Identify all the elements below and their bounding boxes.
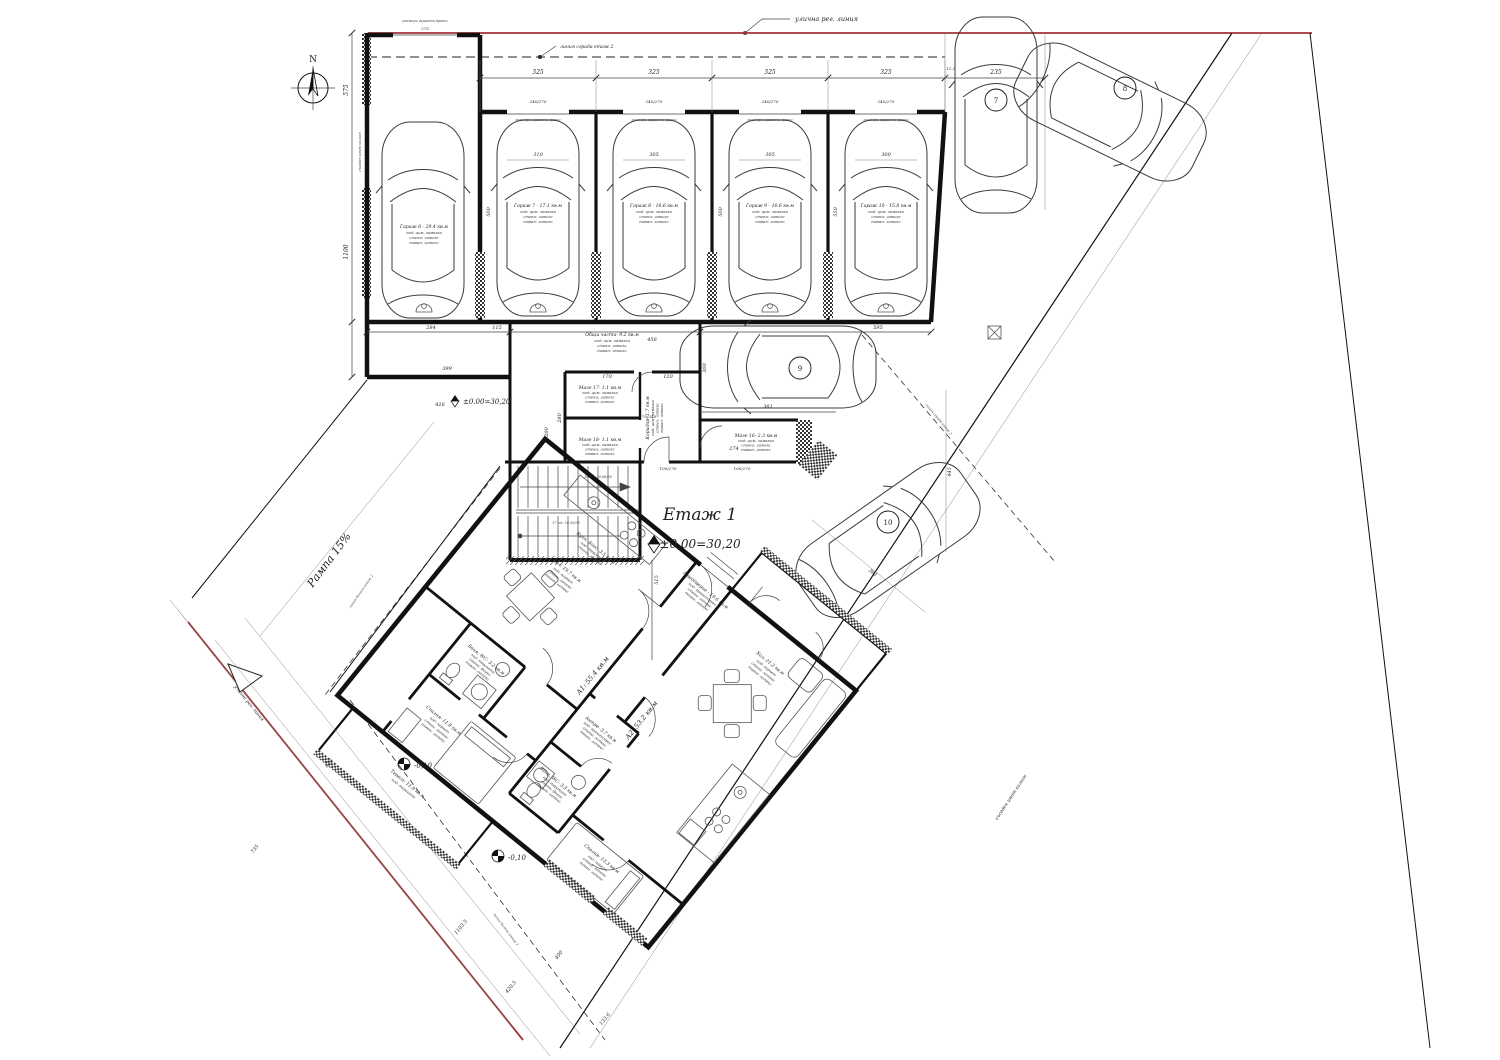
svg-text:±0.00=30,20: ±0.00=30,20 (463, 398, 511, 406)
svg-text:284: 284 (425, 325, 436, 331)
gate-note: размери гаражни врати (402, 19, 447, 23)
svg-text:274: 274 (728, 446, 739, 452)
svg-text:стени: латекс: стени: латекс (597, 344, 626, 348)
stair-flight-note: 17 ст. 16,58/30 (552, 521, 581, 525)
entry-level-mark: ±0.00=30,20 (451, 395, 511, 407)
neighbor-label-se: съседен имот калкан (994, 774, 1028, 822)
parking-number-9: 9 (789, 357, 811, 379)
svg-text:325: 325 (532, 69, 544, 76)
svg-text:таван: латекс: таван: латекс (755, 220, 784, 224)
garage-6-label: Гараж 6 - 29.4 кв.м под: цим. замазка ст… (399, 224, 448, 245)
drain-icon (762, 304, 778, 312)
svg-text:70/240: 70/240 (642, 414, 657, 419)
floor-level: ±0,00=30,20 (659, 537, 741, 551)
shaft-symbol (988, 326, 1001, 339)
svg-text:10: 10 (884, 519, 893, 527)
svg-text:12.5: 12.5 (946, 66, 956, 71)
svg-text:стени: латекс: стени: латекс (741, 444, 770, 448)
svg-text:таван: латекс: таван: латекс (660, 403, 664, 432)
floor-plan-drawing: улична рег. линия линия сграда етаж 2 съ… (0, 0, 1500, 1060)
svg-text:325: 325 (764, 69, 776, 76)
street-line-label: улична рег. линия (794, 15, 858, 23)
svg-text:-0,10: -0,10 (508, 854, 526, 862)
storage-18-label: Мазе 18- 1.1 кв.м под: цим. замазка стен… (578, 437, 622, 456)
car-icon (1001, 27, 1218, 197)
svg-text:Тераса- 11.9 кв.м: Тераса- 11.9 кв.м (389, 768, 426, 799)
svg-text:595: 595 (873, 325, 883, 331)
svg-text:100/270: 100/270 (659, 466, 676, 471)
svg-text:под: цим. замазка: под: цим. замазка (594, 339, 630, 343)
svg-text:Гараж 9 - 16.6 кв.м: Гараж 9 - 16.6 кв.м (745, 203, 794, 209)
svg-text:550: 550 (833, 206, 839, 216)
building-line2-right (862, 335, 1055, 562)
parking-number-8: 8 (1114, 77, 1136, 99)
svg-text:таван: латекс: таван: латекс (597, 349, 626, 353)
drain-icon (646, 304, 662, 312)
svg-text:280: 280 (557, 412, 563, 423)
svg-text:стени: латекс: стени: латекс (409, 236, 438, 240)
a2-antre-label: Антре- 3.7 кв.м под: гранитогрес стени: … (575, 714, 618, 754)
svg-text:235: 235 (989, 69, 1002, 76)
svg-text:таван: латекс: таван: латекс (523, 220, 552, 224)
site-boundaries: улична рег. линия линия сграда етаж 2 съ… (170, 15, 1430, 1048)
svg-text:под: цим. замазка: под: цим. замазка (520, 210, 556, 214)
svg-text:под: цим. замазка: под: цим. замазка (868, 210, 904, 214)
a2-bath-label: Баня, WC- 3.3 кв.м под: теракота стени: … (529, 765, 577, 809)
svg-text:515: 515 (654, 575, 660, 585)
building-line2-label: линия сграда етаж 2 (560, 44, 614, 50)
gate-note: размери гаражни врати (747, 118, 792, 122)
garage-9-label: Гараж 9 - 16.6 кв.м под: цим. замазка ст… (745, 203, 794, 224)
core-block: 16 ст. 16,88/30 17 ст. 16,58/30 Общи час… (451, 322, 837, 565)
drain-icon (530, 304, 546, 312)
svg-text:1103.5: 1103.5 (453, 919, 469, 936)
svg-text:1100: 1100 (343, 244, 350, 259)
kitchen-a1 (564, 475, 666, 564)
svg-text:500: 500 (718, 206, 724, 216)
a1-bath-label: Баня, WC- 3.2 кв.м под: теракота стени: … (457, 642, 505, 686)
svg-text:305: 305 (649, 152, 659, 158)
a2-hol-label: Хол: 21.2 кв.м под: паркет стени: латекс… (745, 650, 786, 689)
gate-note: размери гаражни врати (631, 118, 676, 122)
svg-text:таван: латекс: таван: латекс (585, 400, 614, 404)
drain-icon (878, 304, 894, 312)
common-area-label: Общи части- 9.2 кв.м под: цим. замазка с… (585, 331, 639, 353)
drawing-sheet: улична рег. линия линия сграда етаж 2 съ… (0, 0, 1500, 1060)
svg-text:399: 399 (442, 366, 452, 372)
svg-text:под: цим. замазка: под: цим. замазка (636, 210, 672, 214)
svg-text:-0,10: -0,10 (414, 762, 432, 770)
svg-text:7: 7 (994, 97, 998, 105)
svg-text:9: 9 (798, 365, 802, 373)
balcony-line2-bottom (350, 700, 605, 1040)
svg-text:240/270: 240/270 (876, 99, 894, 104)
svg-text:под: цим. замазка: под: цим. замазка (738, 439, 774, 443)
svg-text:таван: латекс: таван: латекс (409, 241, 438, 245)
svg-text:305: 305 (765, 152, 775, 158)
car-icon (949, 17, 1043, 213)
svg-text:115: 115 (492, 325, 502, 331)
svg-text:стени: латекс: стени: латекс (585, 448, 614, 452)
storage-17-label: Мазе 17- 1.1 кв.м под: цим. замазка стен… (578, 385, 622, 404)
car-icon (376, 122, 470, 318)
car-icon (680, 320, 876, 414)
svg-text:таван: латекс: таван: латекс (741, 448, 770, 452)
svg-text:Гараж 7 - 17.1 кв.м: Гараж 7 - 17.1 кв.м (513, 203, 562, 209)
svg-text:500: 500 (486, 206, 492, 216)
svg-text:300: 300 (881, 152, 891, 158)
svg-text:под: цим. замазка: под: цим. замазка (752, 210, 788, 214)
svg-text:под: цим. замазка: под: цим. замазка (582, 391, 618, 395)
svg-text:361: 361 (763, 404, 773, 410)
balcony-line2-bottom-label: линия балкон етаж 2 (492, 912, 519, 946)
svg-text:456: 456 (646, 337, 657, 343)
a2-bedroom-label: Спалня- 13.3 кв.м под: паркет стени: лат… (573, 843, 620, 887)
svg-text:120: 120 (663, 374, 673, 380)
garage-8-label: Гараж 8 - 16.6 кв.м под: цим. замазка ст… (629, 203, 678, 224)
svg-text:240/270: 240/270 (760, 99, 778, 104)
svg-text:735: 735 (250, 844, 261, 855)
apartment-wing: Хол: 19.7 кв.м под: паркет стени: латекс… (299, 396, 892, 996)
svg-text:таван: латекс: таван: латекс (871, 220, 900, 224)
balcony-line2-left-label: линия балкон етаж 2 (348, 574, 374, 609)
garage-10-label: Гараж 10 - 15.8 кв.м под: цим. замазка с… (860, 203, 912, 224)
svg-text:8: 8 (1123, 85, 1127, 93)
floor-title: Етаж 1 (662, 505, 737, 525)
svg-text:300: 300 (702, 362, 708, 372)
svg-text:325: 325 (648, 69, 660, 76)
svg-text:400: 400 (553, 949, 565, 962)
garage-7-label: Гараж 7 - 17.1 кв.м под: цим. замазка ст… (513, 203, 562, 224)
svg-text:Гараж 6 - 29.4 кв.м: Гараж 6 - 29.4 кв.м (399, 224, 448, 230)
svg-text:стени: латекс: стени: латекс (871, 215, 900, 219)
gate-note: размери гаражни врати (863, 118, 908, 122)
neighbor-label-left: съседен имот калкан (358, 132, 362, 171)
right-boundary-line (1310, 33, 1430, 1048)
svg-text:575: 575 (343, 84, 350, 96)
svg-text:420.5: 420.5 (504, 980, 518, 996)
wardrobe-a1 (388, 708, 421, 743)
svg-text:таван: латекс: таван: латекс (585, 452, 614, 456)
floor-title-block: Етаж 1 ±0,00=30,20 (648, 505, 741, 553)
street-line-label-sw: улична рег. линия (232, 684, 264, 722)
svg-text:275: 275 (420, 26, 429, 31)
svg-text:Гараж 8 - 16.6 кв.м: Гараж 8 - 16.6 кв.м (629, 203, 678, 209)
svg-text:310: 310 (533, 152, 543, 158)
svg-text:стени: латекс: стени: латекс (639, 215, 668, 219)
svg-text:стени: латекс: стени: латекс (585, 396, 614, 400)
svg-text:240/270: 240/270 (644, 99, 662, 104)
parking-number-7: 7 (985, 89, 1007, 111)
parking-number-10: 10 (877, 511, 899, 533)
svg-text:240/270: 240/270 (528, 99, 546, 104)
north-letter: N (309, 55, 317, 65)
dining-table-a2 (698, 670, 766, 738)
svg-text:200: 200 (544, 426, 550, 437)
minus-level-2: -0,10 (492, 850, 526, 862)
apartment-a2-tag: А2: 53.2 кв.м (623, 699, 660, 742)
storage-16-label: Мазе 16- 2.3 кв.м под: цим. замазка стен… (734, 433, 778, 452)
svg-text:426: 426 (434, 402, 445, 408)
outdoor-parking: 7 8 9 10 (680, 17, 1219, 635)
svg-text:под: цим. замазка: под: цим. замазка (406, 231, 442, 235)
svg-text:таван: латекс: таван: латекс (639, 220, 668, 224)
svg-text:325: 325 (880, 69, 892, 76)
building-line2-right-label: линия сграда етаж 2 (925, 403, 953, 436)
svg-text:100/270: 100/270 (733, 466, 750, 471)
north-arrow-icon: N (291, 55, 335, 110)
svg-text:под: цим. замазка: под: цим. замазка (582, 443, 618, 447)
drain-icon (416, 304, 432, 312)
svg-text:Гараж 10 - 15.8 кв.м: Гараж 10 - 15.8 кв.м (860, 203, 912, 209)
gate-note: размери гаражни врати (515, 118, 560, 122)
ramp-label: Рампа 15% (304, 530, 354, 590)
svg-text:445: 445 (947, 467, 953, 478)
a2-hall-label: Преддверие - 19.6 кв.м под: гранитогрес … (673, 570, 730, 621)
svg-text:170: 170 (602, 374, 612, 380)
a1-bedroom-label: Спалня- 11.8 кв.м под: паркет стени: лат… (415, 704, 462, 748)
svg-text:стени: латекс: стени: латекс (755, 215, 784, 219)
svg-text:стени: латекс: стени: латекс (523, 215, 552, 219)
